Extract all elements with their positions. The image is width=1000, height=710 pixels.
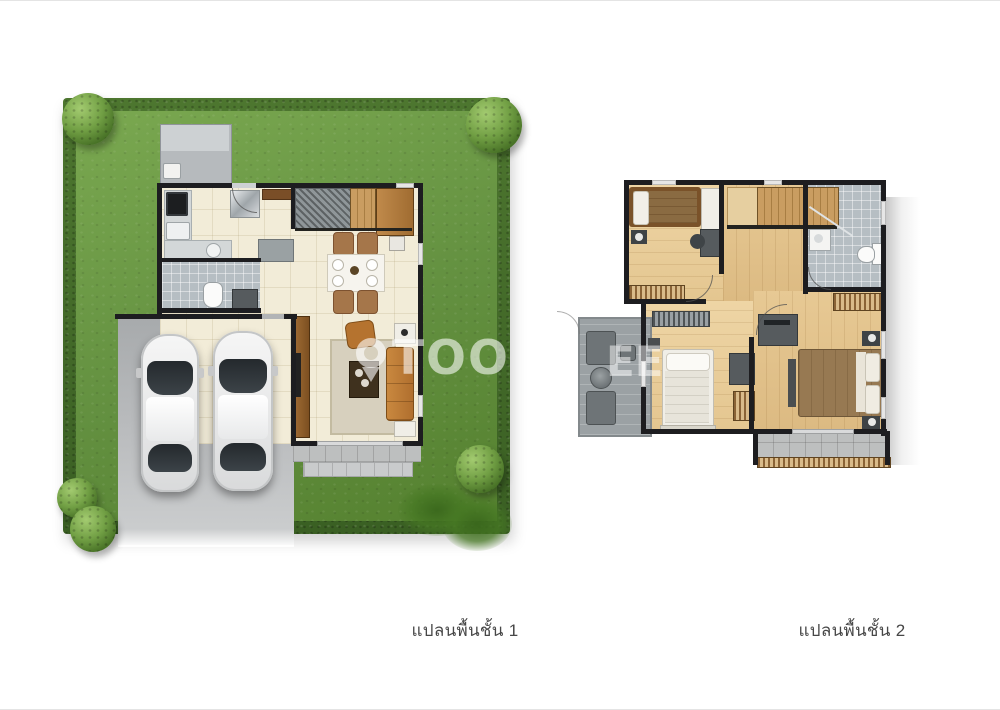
wall: [291, 314, 296, 446]
window: [396, 183, 414, 188]
tree: [62, 93, 114, 145]
lamp: [635, 233, 643, 241]
fern-plant: [442, 497, 512, 551]
wall: [624, 180, 629, 304]
plan2-shadow: [886, 197, 920, 465]
car-rear-window: [148, 444, 192, 472]
door-arc: [557, 311, 580, 334]
car-rear-window: [220, 443, 266, 471]
washing-machine: [163, 163, 181, 179]
plate: [366, 259, 378, 271]
toilet: [203, 282, 223, 308]
stair-landing-2: [727, 187, 759, 227]
car: [213, 331, 273, 491]
bush: [456, 445, 504, 493]
dining-chair: [357, 290, 378, 314]
tree: [466, 97, 522, 153]
wardrobe: [652, 311, 710, 327]
tv: [296, 353, 301, 397]
window: [652, 180, 676, 185]
staircase-2: [757, 187, 839, 227]
window: [881, 201, 886, 225]
lamp: [868, 334, 876, 342]
car-roof: [218, 395, 268, 439]
bed-blanket: [665, 371, 709, 423]
pillow: [633, 191, 649, 225]
basin: [814, 234, 823, 243]
wall: [157, 183, 423, 188]
window: [881, 397, 886, 419]
car-mirror: [198, 368, 204, 378]
rear-balcony: [757, 433, 889, 459]
pin-tail: [362, 367, 380, 382]
wall: [749, 337, 754, 434]
driveway-fade: [118, 529, 294, 547]
car-windshield: [219, 359, 267, 393]
dining-chair: [333, 290, 354, 314]
floor2-caption: แปลนพื้นชั้น 2: [742, 617, 962, 644]
garage-door-gap: [262, 314, 284, 319]
sideboard: [262, 189, 292, 200]
balcony-post: [753, 431, 758, 465]
staircase: [350, 188, 376, 230]
car-mirror: [272, 366, 278, 376]
wall: [157, 183, 162, 319]
window: [881, 331, 886, 359]
kitchen-sink: [166, 222, 190, 240]
pillow: [666, 353, 710, 371]
stair-landing: [295, 188, 352, 230]
toilet-2: [857, 246, 875, 263]
car-roof: [146, 397, 194, 441]
car-mirror: [208, 366, 214, 376]
lamp: [868, 418, 876, 426]
kitchen-peninsula: [258, 239, 294, 262]
stair-railing: [295, 228, 412, 231]
car: [141, 334, 199, 492]
ottoman: [394, 421, 416, 437]
round-sink: [206, 243, 221, 258]
window: [418, 243, 423, 265]
watermark-text-right: EE: [606, 341, 663, 383]
dining-chair: [357, 232, 378, 256]
location-pin-icon: [356, 338, 386, 384]
dining-chair: [333, 232, 354, 256]
desk-chair: [690, 234, 705, 249]
floor1-caption: แปลนพื้นชั้น 1: [355, 617, 575, 644]
terrace-steps: [303, 462, 413, 477]
wall: [157, 308, 261, 313]
plate: [366, 275, 378, 287]
refrigerator: [389, 236, 405, 251]
bed-bench: [788, 359, 796, 407]
bath1-vanity: [232, 289, 258, 310]
wall: [157, 258, 261, 262]
entry-porch: [161, 125, 229, 151]
wall: [719, 180, 724, 274]
wardrobe: [833, 293, 883, 311]
pillow: [865, 385, 880, 414]
plate: [332, 275, 344, 287]
plate: [332, 259, 344, 271]
watermark-text-left: TOO: [392, 335, 510, 382]
balcony-railing: [757, 457, 891, 468]
wall: [803, 287, 885, 292]
balcony-post: [885, 431, 890, 465]
floor-plan-page: TOO EE แปลนพื้นชั้น 1 แปลนพื้นชั้น 2: [0, 0, 1000, 710]
center-dish: [350, 266, 359, 275]
pin-ring: [356, 338, 386, 368]
car-mirror: [136, 368, 142, 378]
stove: [166, 192, 188, 216]
pillow: [865, 353, 880, 382]
window: [764, 180, 782, 185]
tree: [70, 506, 116, 552]
balcony-door: [792, 429, 854, 434]
terrace: [293, 444, 421, 462]
window: [418, 395, 423, 417]
outdoor-sofa: [586, 391, 616, 425]
sliding-door: [317, 441, 403, 446]
wall: [291, 183, 295, 229]
wall: [803, 180, 808, 294]
car-windshield: [147, 361, 193, 395]
